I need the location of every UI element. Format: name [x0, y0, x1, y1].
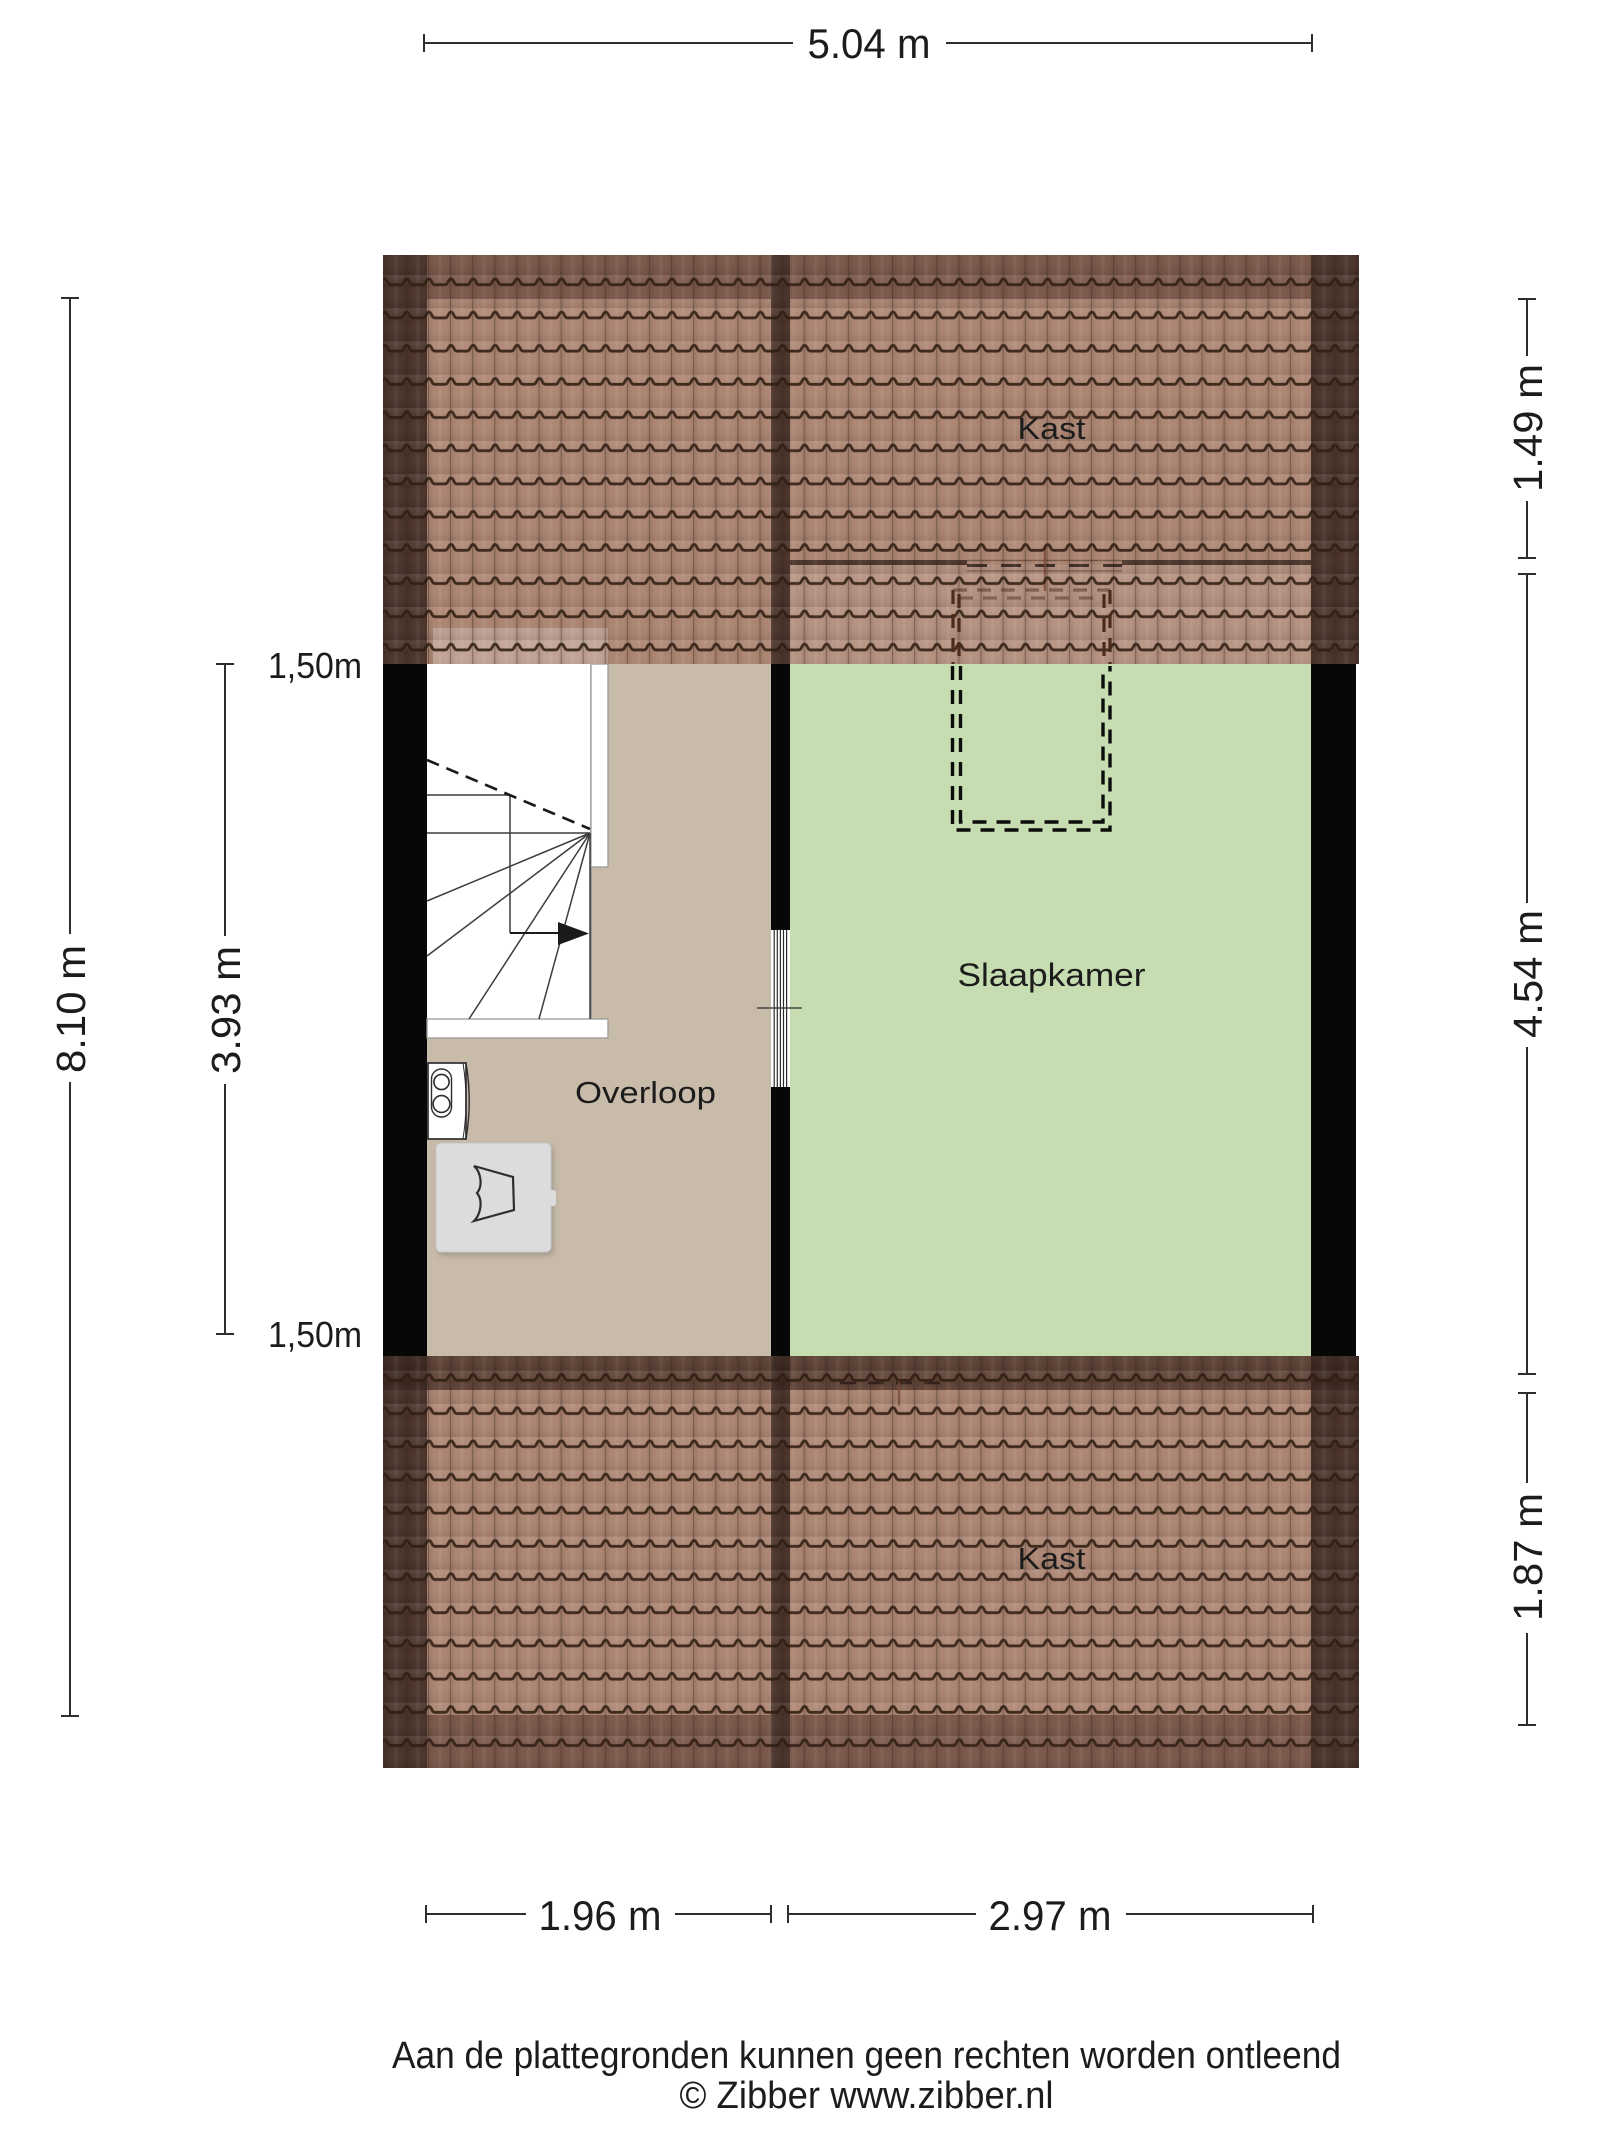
svg-text:4.54 m: 4.54 m [1505, 910, 1551, 1038]
svg-text:1,50m: 1,50m [268, 1314, 362, 1355]
svg-text:Kast: Kast [1018, 1541, 1086, 1576]
svg-text:8.10 m: 8.10 m [48, 945, 94, 1073]
svg-text:© Zibber www.zibber.nl: © Zibber www.zibber.nl [680, 2075, 1054, 2117]
svg-text:5.04 m: 5.04 m [808, 20, 931, 67]
svg-text:2.97 m: 2.97 m [989, 1892, 1112, 1939]
svg-text:1.49 m: 1.49 m [1505, 364, 1551, 492]
svg-text:3.93 m: 3.93 m [203, 946, 249, 1074]
svg-text:1.87 m: 1.87 m [1505, 1493, 1551, 1621]
svg-text:Aan de plattegronden kunnen ge: Aan de plattegronden kunnen geen rechten… [392, 2035, 1341, 2077]
svg-text:1,50m: 1,50m [268, 645, 362, 686]
svg-text:Overloop: Overloop [575, 1075, 716, 1110]
svg-text:Slaapkamer: Slaapkamer [958, 957, 1146, 993]
svg-text:1.96 m: 1.96 m [539, 1892, 662, 1939]
svg-text:Kast: Kast [1018, 411, 1086, 446]
